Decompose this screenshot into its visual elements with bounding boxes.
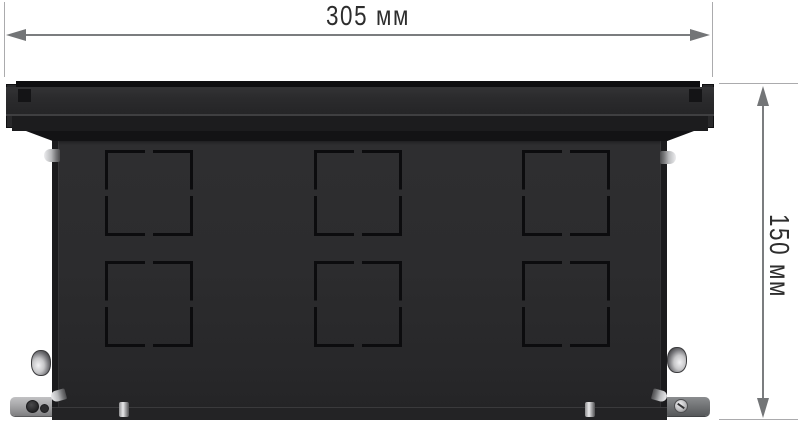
mounting-foot-right	[666, 397, 710, 416]
lid-underside	[12, 116, 708, 131]
latch-knob-icon	[667, 347, 687, 373]
knockout-cutout	[314, 150, 402, 236]
foot-screw-icon	[674, 399, 688, 413]
lid-notch-right	[689, 89, 702, 102]
arrow-down-icon	[757, 398, 769, 418]
arrow-right-icon	[690, 29, 710, 41]
height-dimension-label: 150 мм	[763, 214, 795, 298]
screw-slot	[677, 403, 685, 409]
latch-knob-icon	[31, 350, 51, 376]
extension-line-left	[4, 2, 5, 77]
lid-underside-lip	[26, 131, 694, 141]
width-dimension-label: 305 мм	[326, 0, 410, 32]
box-lid	[6, 87, 714, 114]
lid-notch-left	[18, 89, 31, 102]
mounting-foot-left	[10, 397, 54, 416]
bottom-pin-icon	[585, 402, 595, 417]
extension-line-top	[719, 83, 798, 84]
bottom-pin-icon	[119, 402, 129, 417]
arrow-left-icon	[6, 29, 26, 41]
width-dimension-line	[14, 34, 706, 36]
arrow-up-icon	[757, 86, 769, 106]
foot-screw-icon	[26, 400, 39, 413]
knockout-cutout	[314, 261, 402, 347]
knockout-cutout	[522, 261, 610, 347]
foot-screw-icon	[40, 404, 49, 413]
box-bottom-edge	[52, 407, 667, 420]
knockout-cutout	[105, 261, 193, 347]
side-screw-icon	[660, 151, 676, 164]
knockout-cutout	[522, 150, 610, 236]
side-screw-icon	[44, 149, 60, 162]
product-dimension-diagram: 305 мм 150 мм	[0, 0, 800, 428]
knockout-cutout	[105, 150, 193, 236]
extension-line-bottom	[719, 419, 798, 420]
extension-line-right	[712, 2, 713, 77]
